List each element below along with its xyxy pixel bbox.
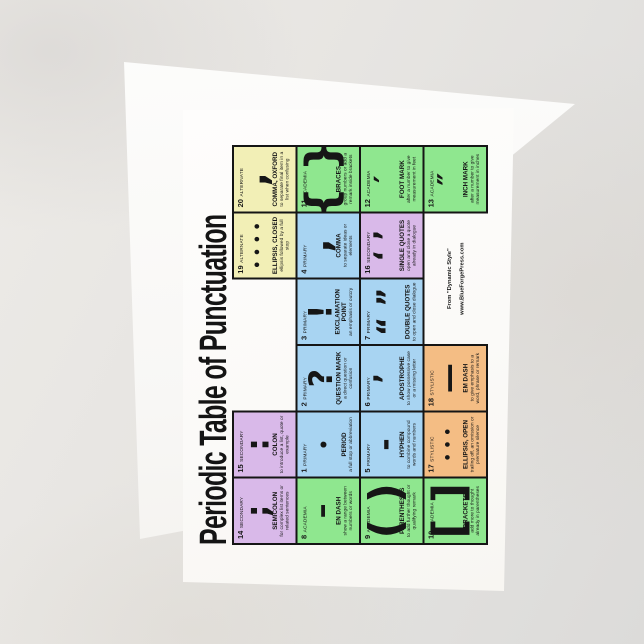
apostrophe-symbol-glyph: ’ <box>372 346 399 410</box>
cell-parentheses: 9ACADEMIA ( ) PARENTHESES to add further… <box>360 478 424 544</box>
punctuation-table: 14SECONDARY ; SEMICOLON for complex list… <box>232 145 488 545</box>
period-symbol-glyph: • <box>308 412 341 476</box>
cell-foot-mark: 12ACADEMIA ′ FOOT MARK after a number to… <box>360 146 424 212</box>
cell-double-quotes: 7PRIMARY “ ” DOUBLE QUOTES to open and c… <box>360 279 424 345</box>
inch-mark-symbol-glyph: ″ <box>435 147 462 211</box>
cell-number-category: 7PRIMARY <box>361 280 372 344</box>
cell-apostrophe: 6PRIMARY ’ APOSTROPHE to show possessive… <box>360 345 424 411</box>
table-row: 10ACADEMIA [ ] BRACKETS add more to thou… <box>424 146 488 544</box>
credit-line-source: From "Dynamic Style" <box>444 214 456 344</box>
empty-grid-gap <box>233 279 297 412</box>
cell-semicolon: 14SECONDARY ; SEMICOLON for complex list… <box>233 478 297 544</box>
cell-ellipsis-open: 17STYLISTIC ••• ELLIPSIS, OPEN trailing … <box>424 411 488 477</box>
cell-number-category: 19ALTERNATE <box>234 213 245 277</box>
punctuation-card: Periodic Table of Punctuation 14SECONDAR… <box>183 108 514 592</box>
cell-colon: 15SECONDARY : COLON to introduce a list,… <box>233 411 297 477</box>
single-quotes-symbol-glyph: ‘ ’ <box>372 213 399 277</box>
cell-braces: 11ACADEMIA { } BRACES group numbers or a… <box>297 146 361 212</box>
cell-number-category: 1PRIMARY <box>298 412 309 476</box>
card-design: Periodic Table of Punctuation 14SECONDAR… <box>195 147 487 545</box>
cell-exclamation-point: 3PRIMARY ! EXCLAMATION POINT an emphasis… <box>297 279 361 345</box>
cell-inch-mark: 13ACADEMIA ″ INCH MARK after a number to… <box>424 146 488 212</box>
parentheses-symbol-glyph: ( ) <box>372 479 399 543</box>
question-mark-symbol-glyph: ? <box>308 346 335 410</box>
brackets-symbol-glyph: [ ] <box>435 479 462 543</box>
braces-symbol-glyph: { } <box>308 147 335 211</box>
cell-hyphen: 5PRIMARY - HYPHEN to combine compound wo… <box>360 411 424 477</box>
table-row: 14SECONDARY ; SEMICOLON for complex list… <box>233 146 297 544</box>
cell-comma: 4PRIMARY , COMMA to separate ideas or el… <box>297 212 361 278</box>
cell-ellipsis-closed: 19ALTERNATE •••• ELLIPSIS, CLOSED ellips… <box>233 212 297 278</box>
credit-text: From "Dynamic Style" www.BlueForgePress.… <box>424 212 488 345</box>
em-dash-symbol-glyph: — <box>435 346 462 410</box>
card-title: Periodic Table of Punctuation <box>195 284 230 545</box>
double-quotes-symbol-glyph: “ ” <box>372 280 405 344</box>
cell-en-dash: 8ACADEMIA – EN DASH show a range between… <box>297 478 361 544</box>
colon-symbol-glyph: : <box>245 412 272 476</box>
credit-line-url: www.BlueForgePress.com <box>456 214 468 344</box>
ellipsis-open-symbol-glyph: ••• <box>435 412 462 476</box>
ellipsis-closed-symbol-glyph: •••• <box>245 213 272 277</box>
table-row: 9ACADEMIA ( ) PARENTHESES to add further… <box>360 146 424 544</box>
cell-period: 1PRIMARY • PERIOD a full stop or abbrevi… <box>297 411 361 477</box>
exclamation-point-symbol-glyph: ! <box>308 280 334 344</box>
cell-single-quotes: 16SECONDARY ‘ ’ SINGLE QUOTES open and c… <box>360 212 424 278</box>
foot-mark-symbol-glyph: ′ <box>372 147 399 211</box>
en-dash-symbol-glyph: – <box>308 479 335 543</box>
comma-symbol-glyph: , <box>308 213 335 277</box>
cell-comma-oxford: 20ALTERNATE , COMMA, OXFORD to separate … <box>233 146 297 212</box>
cell-question-mark: 2PRIMARY ? QUESTION MARK a direct questi… <box>297 345 361 411</box>
cell-em-dash: 18STYLISTIC — EM DASH to give emphasis t… <box>424 345 488 411</box>
cell-number-category: 17STYLISTIC <box>425 412 436 476</box>
product-photo-scene: Periodic Table of Punctuation 14SECONDAR… <box>0 0 644 644</box>
cell-brackets: 10ACADEMIA [ ] BRACKETS add more to thou… <box>424 478 488 544</box>
comma-oxford-symbol-glyph: , <box>245 147 272 211</box>
hyphen-symbol-glyph: - <box>372 412 399 476</box>
table-row: 8ACADEMIA – EN DASH show a range between… <box>297 146 361 544</box>
semicolon-symbol-glyph: ; <box>245 479 272 543</box>
